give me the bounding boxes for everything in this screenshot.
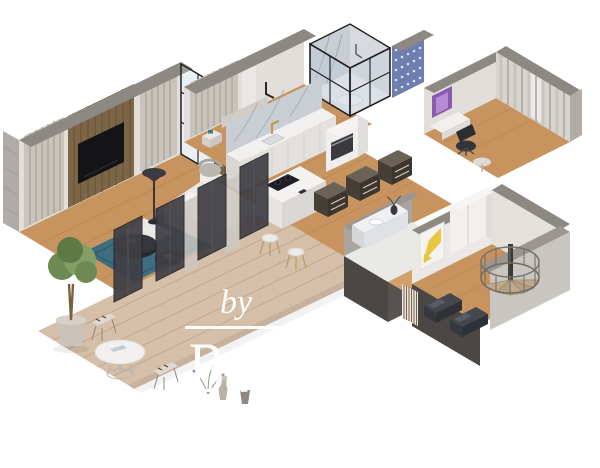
watermark-divider-bottom (183, 446, 417, 449)
dark-vase (391, 205, 398, 215)
isometric-floorplan (0, 0, 600, 468)
watermark-divider-middle (183, 405, 417, 408)
office (424, 46, 582, 178)
deck-vases (193, 365, 251, 405)
basin (369, 219, 383, 225)
watermark-divider-top (185, 326, 313, 329)
office-outer-wall (570, 89, 582, 142)
armchair (199, 163, 221, 177)
west-wall (3, 131, 19, 232)
teal-books (208, 130, 213, 134)
floorplan-render: by Baerz & Cö LUXURY HOMES (0, 0, 600, 468)
tree-trunk (69, 284, 73, 320)
